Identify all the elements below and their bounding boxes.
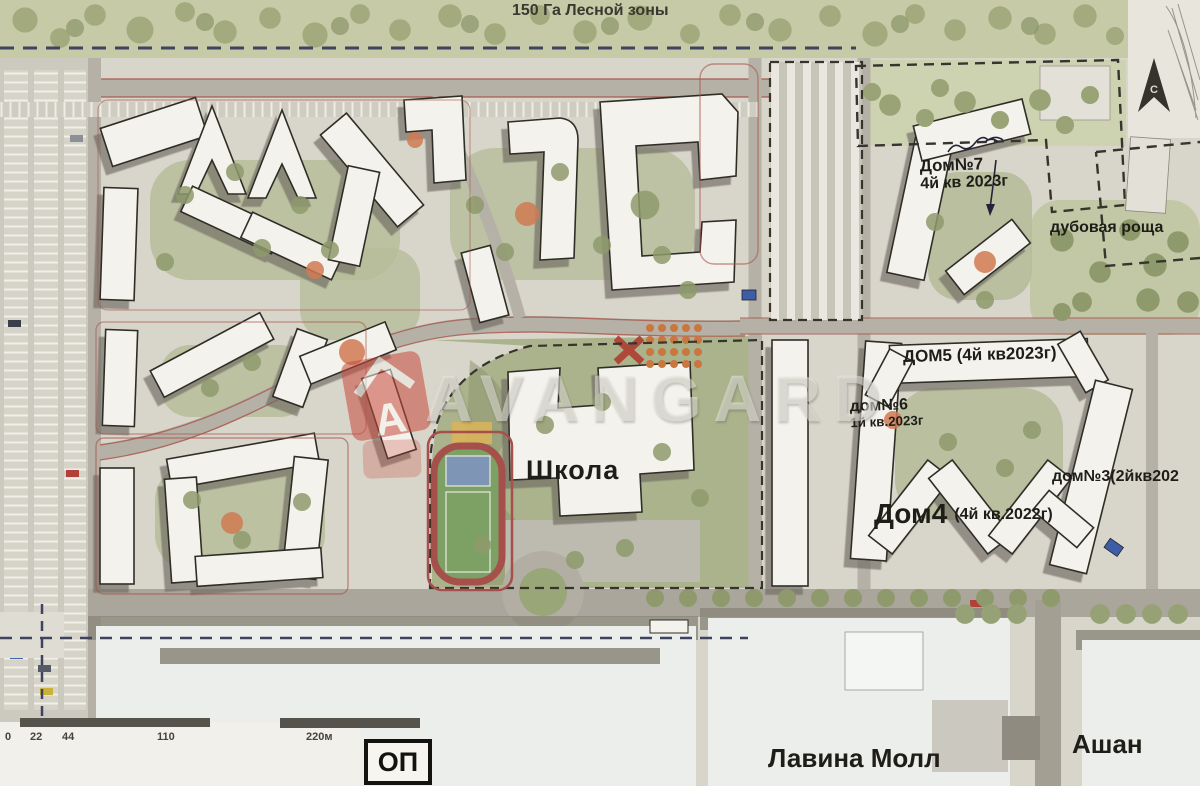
house7-label: Дом№7 4й кв 2023г	[919, 153, 1008, 193]
op-label: ОП	[378, 747, 418, 778]
oak-grove-label: дубовая роща	[1050, 219, 1163, 237]
site-plan-map: С А 15	[0, 0, 1200, 786]
sport-court	[446, 456, 490, 486]
house5-label: ДОМ5 (4й кв2023г)	[903, 343, 1057, 366]
house4-name: Дом4	[874, 498, 947, 529]
scale-tick: 110	[157, 731, 175, 743]
lavina-mall-label: Лавина Молл	[768, 744, 941, 773]
scale-tick: 220м	[306, 731, 333, 743]
bus-stop	[650, 620, 688, 633]
scale-tick: 22	[30, 731, 42, 743]
scale-tick: 0	[5, 731, 11, 743]
paper-strip	[0, 718, 1200, 786]
house4-label: Дом4(4й кв.2022г)	[874, 498, 1053, 529]
house7-name: Дом№7	[919, 154, 983, 175]
forest-zone-label: 150 Га Лесной зоны	[512, 2, 669, 20]
house4-term: (4й кв.2022г)	[954, 506, 1052, 523]
op-stop-badge: ОП	[364, 739, 432, 785]
mid-parking-lot	[770, 62, 862, 320]
ashan-label: Ашан	[1072, 730, 1143, 759]
roundabout-island	[519, 568, 567, 616]
house3-label: дом№3(2йкв202	[1052, 468, 1179, 486]
watermark: AVANGARD	[425, 360, 893, 436]
house7-term: 4й кв 2023г	[920, 172, 1008, 193]
school-label: Школа	[526, 455, 619, 485]
scale-tick: 44	[62, 731, 74, 743]
north-letter: С	[1150, 84, 1158, 96]
